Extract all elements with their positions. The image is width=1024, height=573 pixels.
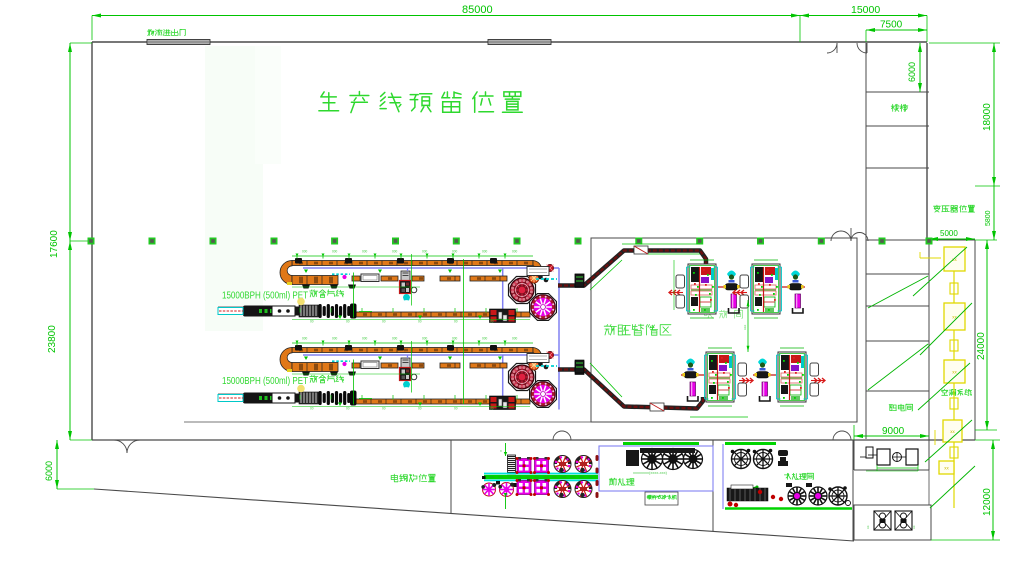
svg-text:000: 000: [332, 250, 338, 254]
svg-text:00: 00: [310, 407, 314, 411]
svg-text:xx: xx: [912, 525, 916, 529]
svg-text:000: 000: [392, 250, 398, 254]
svg-text:000: 000: [362, 250, 368, 254]
svg-text:000: 000: [302, 337, 308, 341]
svg-text:000: 000: [362, 337, 368, 341]
svg-text:18000: 18000: [982, 103, 993, 131]
svg-text:xx: xx: [952, 370, 957, 375]
svg-text:00: 00: [346, 407, 350, 411]
svg-text:17600: 17600: [49, 230, 60, 258]
svg-text:15000BPH (500ml) PET: 15000BPH (500ml) PET: [222, 289, 308, 301]
svg-text:x: x: [500, 449, 502, 453]
svg-text:9000: 9000: [882, 426, 905, 437]
svg-text:000: 000: [422, 250, 428, 254]
svg-text:000: 000: [512, 250, 518, 254]
svg-text:00: 00: [454, 320, 458, 324]
svg-text:000: 000: [332, 337, 338, 341]
svg-text:12000: 12000: [982, 488, 993, 516]
svg-text:6000: 6000: [907, 62, 917, 82]
svg-text:6000: 6000: [44, 461, 54, 481]
svg-text:00: 00: [382, 407, 386, 411]
svg-text:xxx: xxx: [743, 325, 747, 331]
svg-text:000: 000: [512, 337, 518, 341]
svg-text:85000: 85000: [462, 4, 493, 16]
svg-text:7500: 7500: [880, 20, 903, 31]
svg-text:xx: xx: [944, 466, 949, 471]
svg-text:00: 00: [490, 320, 494, 324]
svg-text:00: 00: [310, 320, 314, 324]
svg-text:00: 00: [382, 320, 386, 324]
svg-text:15000: 15000: [851, 4, 880, 16]
svg-text:xxxxxxxx(xxxx-xxx): xxxxxxxx(xxxx-xxx): [633, 470, 668, 475]
svg-text:15000BPH (500ml) PET: 15000BPH (500ml) PET: [222, 375, 308, 387]
svg-text:00: 00: [454, 407, 458, 411]
svg-text:23800: 23800: [47, 325, 58, 353]
svg-text:000: 000: [302, 250, 308, 254]
svg-text:00: 00: [490, 407, 494, 411]
svg-text:24000: 24000: [976, 332, 987, 360]
svg-text:00: 00: [418, 407, 422, 411]
svg-text:000: 000: [422, 337, 428, 341]
svg-text:00: 00: [346, 320, 350, 324]
svg-text:5800: 5800: [985, 210, 992, 226]
svg-text:000: 000: [482, 250, 488, 254]
svg-text:000: 000: [392, 337, 398, 341]
svg-text:5000: 5000: [940, 229, 958, 238]
svg-text:000: 000: [482, 337, 488, 341]
svg-text:xx: xx: [866, 525, 870, 529]
svg-text:xx: xx: [950, 429, 955, 434]
svg-text:000: 000: [452, 337, 458, 341]
svg-text:000: 000: [452, 250, 458, 254]
svg-text:00: 00: [418, 320, 422, 324]
